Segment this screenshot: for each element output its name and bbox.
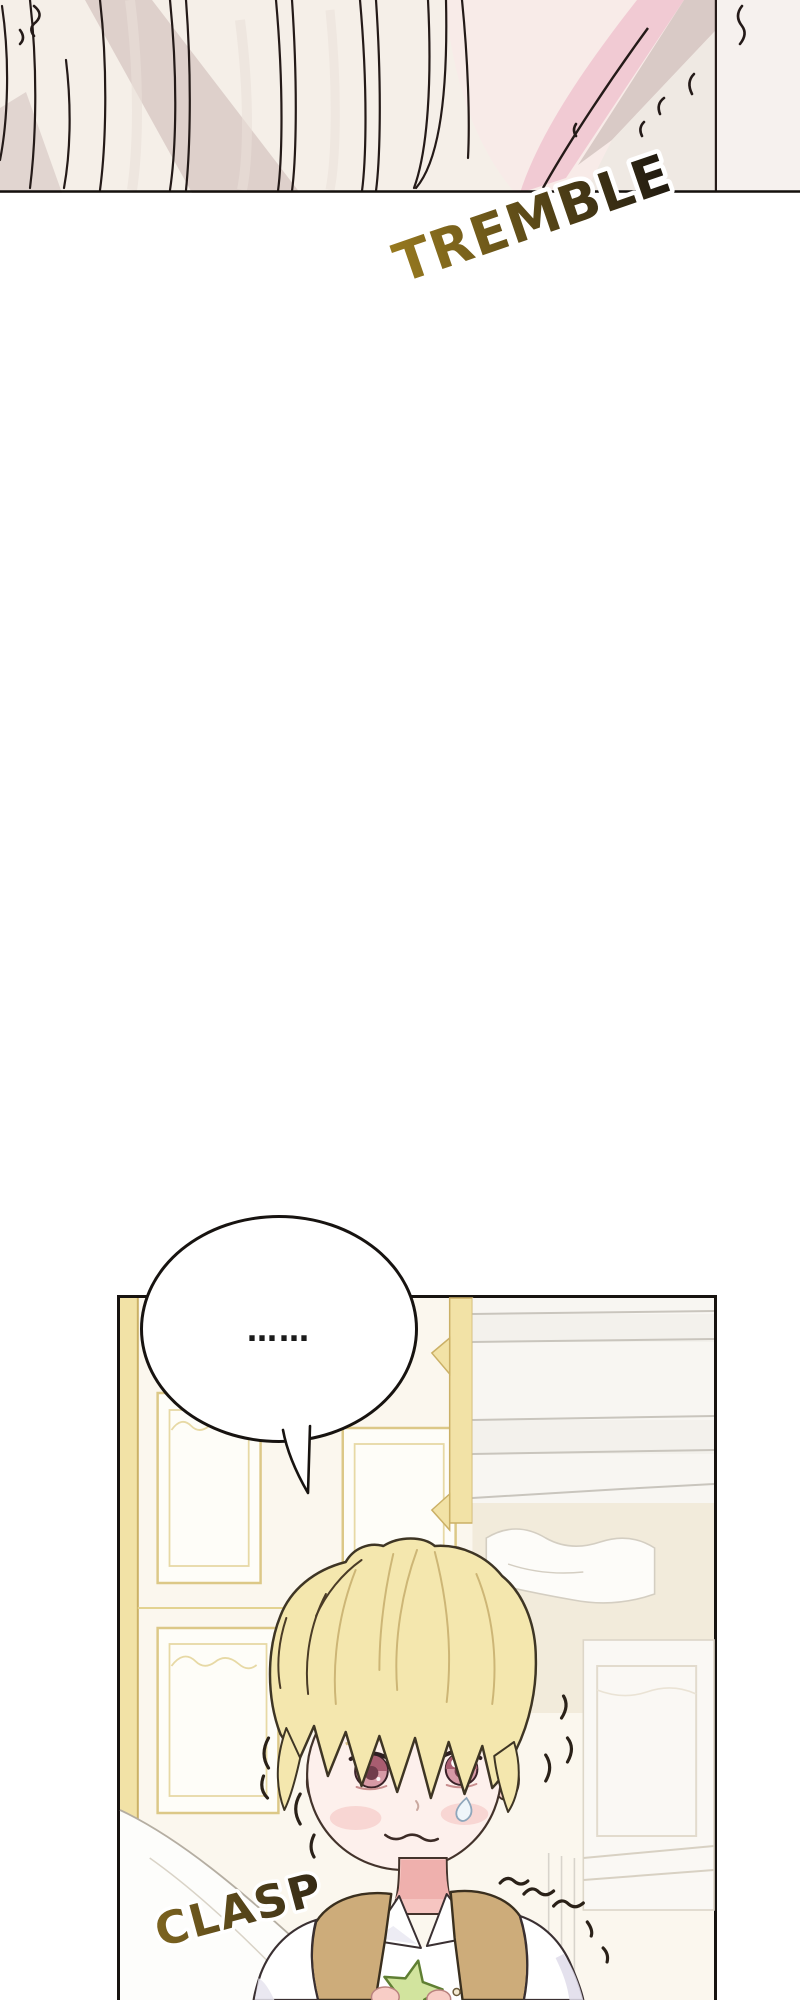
vest-button [453,1989,460,1996]
gold-column [120,1298,138,1828]
wardrobe [472,1298,714,1503]
manhwa-page: TREMBLE [0,0,800,2000]
bubble-tail [265,1400,335,1500]
sfx-tremble: TREMBLE [382,128,722,313]
sfx-clasp-text: CLASP [149,1862,329,1958]
bubble-text: …… [247,1314,311,1349]
right-strip [717,0,800,193]
blush-left [330,1806,381,1830]
sfx-clasp: CLASP [148,1852,378,1982]
sfx-tremble-text: TREMBLE [386,142,679,295]
